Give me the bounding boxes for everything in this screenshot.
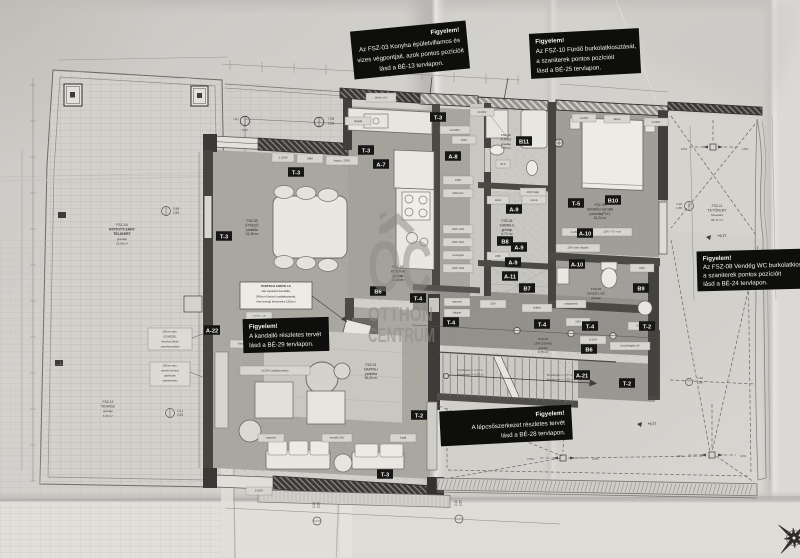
svg-text:zárt égésterű kandalló,: zárt égésterű kandalló,	[261, 289, 290, 293]
svg-text:230V sütő: 230V sütő	[452, 227, 465, 231]
svg-text:greslap: greslap	[501, 142, 511, 146]
svg-text:A-11: A-11	[504, 274, 516, 280]
svg-text:kémény békés: kémény békés	[161, 340, 179, 344]
svg-text:PANTECH 1390VD LG: PANTECH 1390VD LG	[261, 284, 292, 288]
svg-text:radiátor: radiátor	[533, 307, 541, 310]
svg-text:VENDÉG-SZOBA: VENDÉG-SZOBA	[587, 206, 614, 211]
svg-text:230V + TV + sat: 230V + TV + sat	[603, 231, 621, 234]
svg-text:13%: 13%	[740, 454, 746, 458]
svg-text:35,63 m²: 35,63 m²	[364, 376, 378, 380]
svg-text:2,10: 2,10	[312, 502, 316, 508]
svg-text:világítás: világítás	[453, 312, 463, 315]
svg-text:2,85: 2,85	[173, 211, 179, 215]
svg-text:CENTRUM: CENTRUM	[368, 325, 435, 347]
svg-text:KAMRA S: KAMRA S	[500, 223, 515, 227]
svg-text:13%: 13%	[742, 147, 748, 151]
svg-text:FSZ-05: FSZ-05	[502, 219, 513, 223]
svg-text:2×230V: 2×230V	[589, 339, 598, 342]
svg-text:B11: B11	[519, 139, 529, 145]
svg-text:A-9: A-9	[509, 207, 518, 213]
svg-text:kapcs. 230V: kapcs. 230V	[334, 159, 351, 163]
svg-text:9×belépés = 0,28 m: 9×belépés = 0,28 m	[457, 373, 484, 377]
svg-text:T-3: T-3	[362, 148, 370, 154]
svg-text:9×fellépés = 3,77 m: 9×fellépés = 3,77 m	[457, 368, 484, 372]
svg-text:Figyelem!: Figyelem!	[703, 255, 732, 263]
svg-text:+0,77: +0,77	[718, 234, 727, 238]
svg-text:A-21: A-21	[576, 373, 588, 379]
svg-text:2×230V: 2×230V	[450, 128, 460, 132]
svg-text:230V tükör világítás: 230V tükör világítás	[568, 247, 590, 250]
svg-text:8,05: 8,05	[242, 128, 248, 132]
svg-text:2×230V: 2×230V	[255, 490, 264, 493]
svg-text:T-3: T-3	[292, 170, 300, 176]
svg-text:2,5%: 2,5%	[592, 457, 599, 461]
svg-text:Ø-3: Ø-3	[500, 162, 505, 166]
svg-text:240mm füstcső csatlakozással,: 240mm füstcső csatlakozással,	[256, 294, 296, 298]
svg-text:A-8: A-8	[448, 154, 457, 160]
svg-text:greslap: greslap	[538, 346, 548, 350]
svg-text:B10: B10	[608, 198, 618, 204]
svg-text:VENDÉG WC: VENDÉG WC	[587, 290, 606, 295]
svg-text:dugalj: dugalj	[400, 437, 407, 440]
svg-text:13%: 13%	[681, 147, 687, 151]
svg-text:NYITOTT-ZÁRT: NYITOTT-ZÁRT	[109, 227, 136, 232]
svg-text:A-10: A-10	[571, 262, 583, 268]
svg-text:230V: 230V	[455, 178, 461, 182]
svg-text:230V: 230V	[461, 138, 467, 142]
svg-text:2,85: 2,85	[459, 500, 463, 506]
svg-text:2×230V padlókonvektor: 2×230V padlókonvektor	[261, 368, 288, 372]
svg-text:230V: 230V	[495, 255, 501, 258]
svg-text:tároló: tároló	[495, 199, 502, 202]
svg-text:friss levegő bevezetés 125mm: friss levegő bevezetés 125mm	[256, 300, 296, 304]
svg-text:2×230V: 2×230V	[652, 121, 661, 124]
svg-text:TÉLIKERT: TÉLIKERT	[113, 231, 131, 236]
svg-text:T-4: T-4	[447, 320, 456, 326]
svg-text:(41): (41)	[233, 117, 238, 121]
svg-text:1,88: 1,88	[697, 381, 703, 385]
svg-text:B7: B7	[523, 286, 530, 292]
svg-text:füvesített: füvesített	[711, 213, 723, 217]
svg-text:8×belépés = 1,35 m: 8×belépés = 1,35 m	[547, 378, 574, 382]
svg-text:A-22: A-22	[206, 328, 218, 334]
svg-text:2,5%: 2,5%	[676, 454, 683, 458]
svg-text:FSZ-08: FSZ-08	[591, 287, 601, 291]
svg-text:B8: B8	[501, 239, 508, 245]
svg-text:szerelt kémény: szerelt kémény	[161, 369, 180, 373]
svg-text:T-5: T-5	[572, 201, 580, 207]
svg-text:parketta: parketta	[246, 228, 258, 232]
svg-text:szappantartó: szappantartó	[564, 303, 578, 306]
svg-text:36,71 m²: 36,71 m²	[711, 218, 723, 222]
svg-text:15,24 m²: 15,24 m²	[593, 216, 607, 220]
svg-text:9,75 m²: 9,75 m²	[538, 350, 548, 354]
svg-text:230V hűtő: 230V hűtő	[452, 266, 465, 270]
svg-text:1×230V: 1×230V	[580, 117, 589, 120]
svg-text:1,88: 1,88	[676, 206, 682, 210]
svg-text:ÉTKEZŐ: ÉTKEZŐ	[245, 222, 259, 227]
svg-text:dugalj: dugalj	[354, 119, 362, 123]
svg-text:230V: 230V	[575, 321, 581, 324]
svg-text:FÜRDŐ: FÜRDŐ	[501, 136, 512, 141]
svg-text:B9: B9	[637, 286, 644, 292]
svg-text:mosogató: mosogató	[452, 253, 464, 257]
svg-text:2×230V: 2×230V	[477, 110, 486, 114]
svg-text:230V bojler: 230V bojler	[527, 191, 540, 194]
svg-text:lépcsővilágítás vdl: lépcsővilágítás vdl	[621, 345, 640, 348]
svg-text:falióra: falióra	[614, 118, 621, 121]
svg-text:T-2: T-2	[415, 413, 423, 419]
svg-text:FSZ-10: FSZ-10	[501, 133, 511, 137]
svg-text:A-7: A-7	[376, 162, 385, 168]
svg-text:T-4: T-4	[538, 322, 547, 328]
svg-text:1 230V: 1 230V	[278, 156, 288, 160]
svg-text:230V: 230V	[639, 267, 645, 270]
svg-text:greslap: greslap	[591, 296, 601, 300]
svg-text:szerelvényekkel: szerelvényekkel	[160, 345, 180, 349]
svg-text:NAPPALI: NAPPALI	[364, 367, 378, 371]
svg-text:polcok: polcok	[530, 199, 538, 202]
svg-text:FSZ-02: FSZ-02	[538, 337, 548, 341]
svg-text:FSZ-11: FSZ-11	[712, 204, 723, 208]
svg-text:1,29: 1,29	[697, 376, 703, 380]
svg-text:150mm átm.: 150mm átm.	[163, 364, 178, 368]
svg-text:parketta(PVC): parketta(PVC)	[590, 212, 611, 216]
svg-text:Figyelem!: Figyelem!	[535, 410, 564, 419]
svg-text:T-2: T-2	[643, 324, 651, 330]
svg-text:A-9: A-9	[508, 260, 517, 266]
svg-text:8×fellépés = 3,77 m: 8×fellépés = 3,77 m	[547, 373, 574, 377]
svg-text:16,36 m²: 16,36 m²	[245, 232, 259, 236]
svg-text:T-3: T-3	[220, 234, 228, 240]
svg-text:M90: M90	[307, 157, 313, 161]
svg-text:FSZ-04: FSZ-04	[116, 223, 127, 227]
svg-text:kapcsoló: kapcsoló	[452, 301, 462, 304]
svg-text:2,10: 2,10	[454, 500, 458, 506]
svg-text:szekrényben: szekrényben	[162, 379, 178, 383]
svg-text:OC: OC	[368, 228, 432, 307]
svg-text:FSZ-01: FSZ-01	[366, 363, 377, 367]
svg-text:230V kéz: 230V kéz	[452, 191, 464, 195]
svg-text:FSZ-06: FSZ-06	[595, 203, 606, 207]
svg-text:Figyelem!: Figyelem!	[249, 323, 278, 331]
svg-text:T-4: T-4	[586, 324, 595, 330]
svg-text:260mm átm.: 260mm átm.	[163, 330, 178, 334]
svg-text:OTTHON: OTTHON	[368, 304, 433, 326]
svg-text:greslap: greslap	[502, 228, 513, 232]
svg-text:kandalló 230V: kandalló 230V	[330, 438, 345, 440]
svg-text:T-3: T-3	[381, 472, 389, 478]
svg-text:2×230V + vdl: 2×230V + vdl	[253, 315, 266, 318]
svg-text:7,08: 7,08	[328, 117, 334, 121]
svg-text:2,5%: 2,5%	[527, 457, 534, 461]
svg-text:SCHIEDEL: SCHIEDEL	[163, 335, 177, 339]
svg-text:2,85: 2,85	[317, 502, 321, 508]
svg-text:A-9: A-9	[514, 245, 523, 251]
svg-text:(felső vil.): (felső vil.)	[375, 96, 388, 100]
svg-text:7,20 m²: 7,20 m²	[501, 146, 511, 150]
svg-text:LÉPCSŐHÁZ: LÉPCSŐHÁZ	[534, 340, 552, 345]
svg-text:TETŐKERT: TETŐKERT	[707, 208, 727, 213]
svg-text:2,95: 2,95	[328, 122, 334, 126]
svg-text:kapcsoló: kapcsoló	[266, 437, 276, 440]
svg-text:230V főző: 230V főző	[452, 240, 465, 244]
svg-text:T-3: T-3	[434, 115, 442, 121]
svg-text:230V: 230V	[490, 303, 496, 306]
svg-text:A-10: A-10	[579, 231, 591, 237]
svg-text:T-2: T-2	[623, 381, 631, 387]
svg-text:parketta: parketta	[365, 372, 377, 376]
svg-text:gázkazán: gázkazán	[164, 374, 176, 378]
svg-text:B6: B6	[585, 347, 592, 353]
svg-text:FSZ-43: FSZ-43	[247, 219, 258, 223]
svg-text:6,70 m²: 6,70 m²	[501, 232, 513, 236]
svg-text:+0,77: +0,77	[648, 422, 657, 426]
